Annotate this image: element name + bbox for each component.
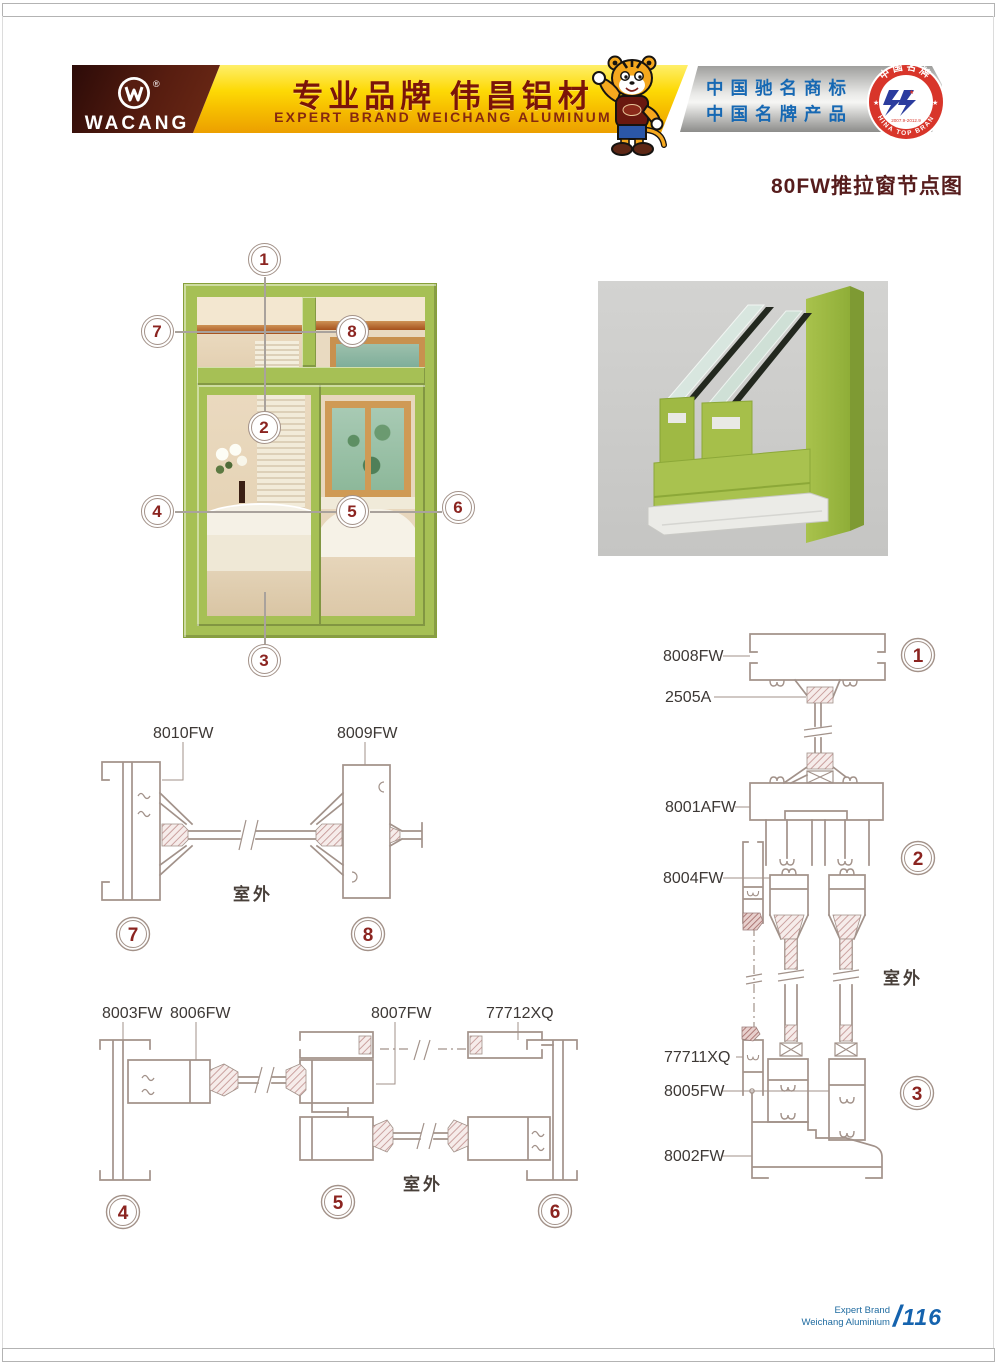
outdoor-label-456: 室外 xyxy=(403,1174,443,1194)
label-77711XQ: 77711XQ xyxy=(664,1049,730,1066)
label-8010FW: 8010FW xyxy=(153,725,214,742)
china-top-brand-badge-icon: 中国名牌 CHINA TOP BRAND ★ ★ ★ 2007.9-2012.9 xyxy=(865,61,947,143)
window-illustration xyxy=(183,283,437,638)
window-callout-6: 6 xyxy=(442,491,475,524)
callout-line-7-8 xyxy=(175,331,336,333)
tiger-mascot-icon xyxy=(585,52,677,156)
label-8008FW: 8008FW xyxy=(663,648,724,665)
badge-star-left: ★ xyxy=(873,99,879,107)
svg-text:7: 7 xyxy=(128,925,139,946)
label-8006FW: 8006FW xyxy=(170,1005,231,1022)
footer-credit: Expert Brand Weichang Aluminium xyxy=(801,1305,890,1329)
page-number-slash: / xyxy=(893,1300,901,1334)
window-callout-3: 3 xyxy=(248,644,281,677)
callout-line-3 xyxy=(264,592,266,644)
svg-text:3: 3 xyxy=(912,1084,923,1105)
window-callout-2: 2 xyxy=(248,411,281,444)
label-8007FW: 8007FW xyxy=(371,1005,432,1022)
window-callout-8: 8 xyxy=(336,315,369,348)
label-8003FW: 8003FW xyxy=(102,1005,163,1022)
wacang-logo-icon: ® xyxy=(116,74,196,114)
outdoor-label-78: 室外 xyxy=(233,884,273,904)
callout-line-1-2 xyxy=(264,277,266,411)
svg-text:5: 5 xyxy=(333,1193,344,1214)
bottom-print-strip xyxy=(2,1348,995,1362)
section-7-8-drawing: 8010FW 8009FW 室外 7 8 xyxy=(90,700,470,960)
footer-credit-line1: Expert Brand xyxy=(801,1305,890,1317)
drawing-callout-8: 8 xyxy=(352,918,385,951)
label-8004FW: 8004FW xyxy=(663,870,724,887)
window-callout-5: 5 xyxy=(336,495,369,528)
svg-text:4: 4 xyxy=(118,1203,129,1224)
section-4-5-6-drawing: 8003FW 8006FW 8007FW 77712XQ 室外 4 5 6 xyxy=(90,1000,610,1230)
label-8005FW: 8005FW xyxy=(664,1083,725,1100)
badge-star-right: ★ xyxy=(932,99,938,107)
window-callout-1: 1 xyxy=(248,243,281,276)
svg-text:1: 1 xyxy=(913,646,924,667)
drawing-callout-3: 3 xyxy=(901,1077,934,1110)
drawing-callout-1: 1 xyxy=(902,639,935,672)
svg-text:6: 6 xyxy=(550,1202,561,1223)
page-number: 116 xyxy=(902,1304,942,1331)
left-page-edge xyxy=(2,16,3,1348)
honor-line-1: 中国驰名商标 xyxy=(706,75,853,101)
svg-text:8: 8 xyxy=(363,925,374,946)
label-2505A: 2505A xyxy=(665,689,712,706)
footer-credit-line2: Weichang Aluminium xyxy=(801,1317,890,1329)
badge-dates: 2007.9-2012.9 xyxy=(891,118,921,123)
callout-line-4-5 xyxy=(175,511,336,513)
page-title: 80FW推拉窗节点图 xyxy=(771,170,963,200)
label-77712XQ: 77712XQ xyxy=(486,1005,554,1022)
window-callout-7: 7 xyxy=(141,315,174,348)
honor-line-2: 中国名牌产品 xyxy=(706,101,853,127)
window-callout-4: 4 xyxy=(141,495,174,528)
badge-star-center: ★ xyxy=(909,89,914,96)
catalog-page: 中国驰名商标 中国名牌产品 专业品牌 伟昌铝材 EXPERT BRAND WEI… xyxy=(0,0,1000,1366)
drawing-callout-4: 4 xyxy=(107,1196,140,1229)
outdoor-label-123: 室外 xyxy=(883,968,923,988)
logo-reg-mark: ® xyxy=(153,79,160,89)
drawing-callout-2: 2 xyxy=(902,842,935,875)
top-print-strip xyxy=(2,3,995,17)
svg-text:2: 2 xyxy=(913,849,924,870)
drawing-callout-7: 7 xyxy=(117,918,150,951)
label-8009FW: 8009FW xyxy=(337,725,398,742)
profile-3d-render xyxy=(598,281,888,556)
logo-wordmark: WACANG xyxy=(82,113,192,135)
callout-line-5-6 xyxy=(370,511,442,513)
transom-bar xyxy=(197,367,425,385)
footer: Expert Brand Weichang Aluminium / 116 xyxy=(801,1300,942,1334)
drawing-callout-6: 6 xyxy=(539,1195,572,1228)
honor-text: 中国驰名商标 中国名牌产品 xyxy=(706,75,853,127)
section-1-2-3-drawing: 8008FW 2505A 8001AFW 8004FW 77711XQ 8005… xyxy=(650,625,950,1195)
drawing-callout-5: 5 xyxy=(322,1186,355,1219)
label-8002FW: 8002FW xyxy=(664,1148,725,1165)
right-page-edge xyxy=(993,16,994,1348)
label-8001AFW: 8001AFW xyxy=(665,799,737,816)
